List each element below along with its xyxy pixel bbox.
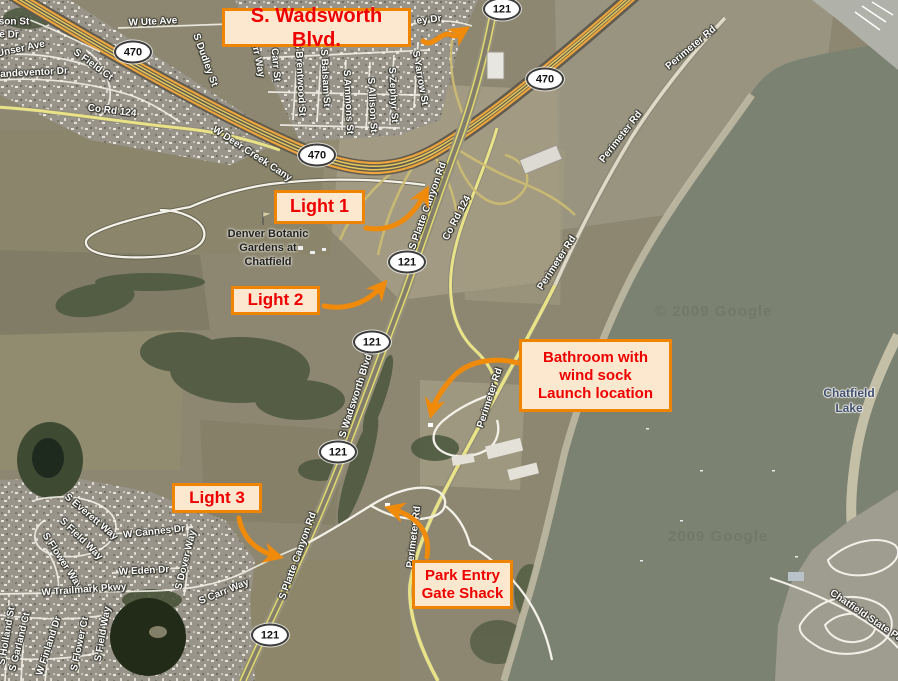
highway-shield-470: 470 [114,41,152,64]
street-label: e Dr [0,30,19,41]
watermark: © 2009 Google [655,303,772,320]
callout-wadsworth-blvd: S. Wadsworth Blvd. [222,8,411,47]
callout-bathroom-launch: Bathroom with wind sock Launch location [519,339,672,412]
highway-shield-121: 121 [319,441,357,464]
gate-shack-building [385,503,390,507]
highway-shield-121: 121 [251,624,289,647]
neighborhood-pond [110,598,186,676]
watermark: 2009 Google [668,528,768,545]
satellite-map-canvas[interactable]: © 2009 Google 2009 Google son St e Dr Un… [0,0,898,681]
callout-park-entry-gate: Park Entry Gate Shack [412,560,513,609]
highway-shield-470: 470 [526,68,564,91]
callout-light3: Light 3 [172,483,262,513]
callout-light1: Light 1 [274,190,365,224]
highway-shield-470: 470 [298,144,336,167]
chatfield-lake-label: Chatfield Lake [823,386,874,416]
callout-light2: Light 2 [231,286,320,315]
highway-shield-121: 121 [388,251,426,274]
botanic-gardens-label: Denver Botanic Gardens at Chatfield [228,228,309,269]
street-label: son St [0,17,29,28]
warehouse-building [487,52,504,79]
bathroom-building [428,423,433,427]
highway-shield-121: 121 [353,331,391,354]
small-pond [32,438,64,478]
